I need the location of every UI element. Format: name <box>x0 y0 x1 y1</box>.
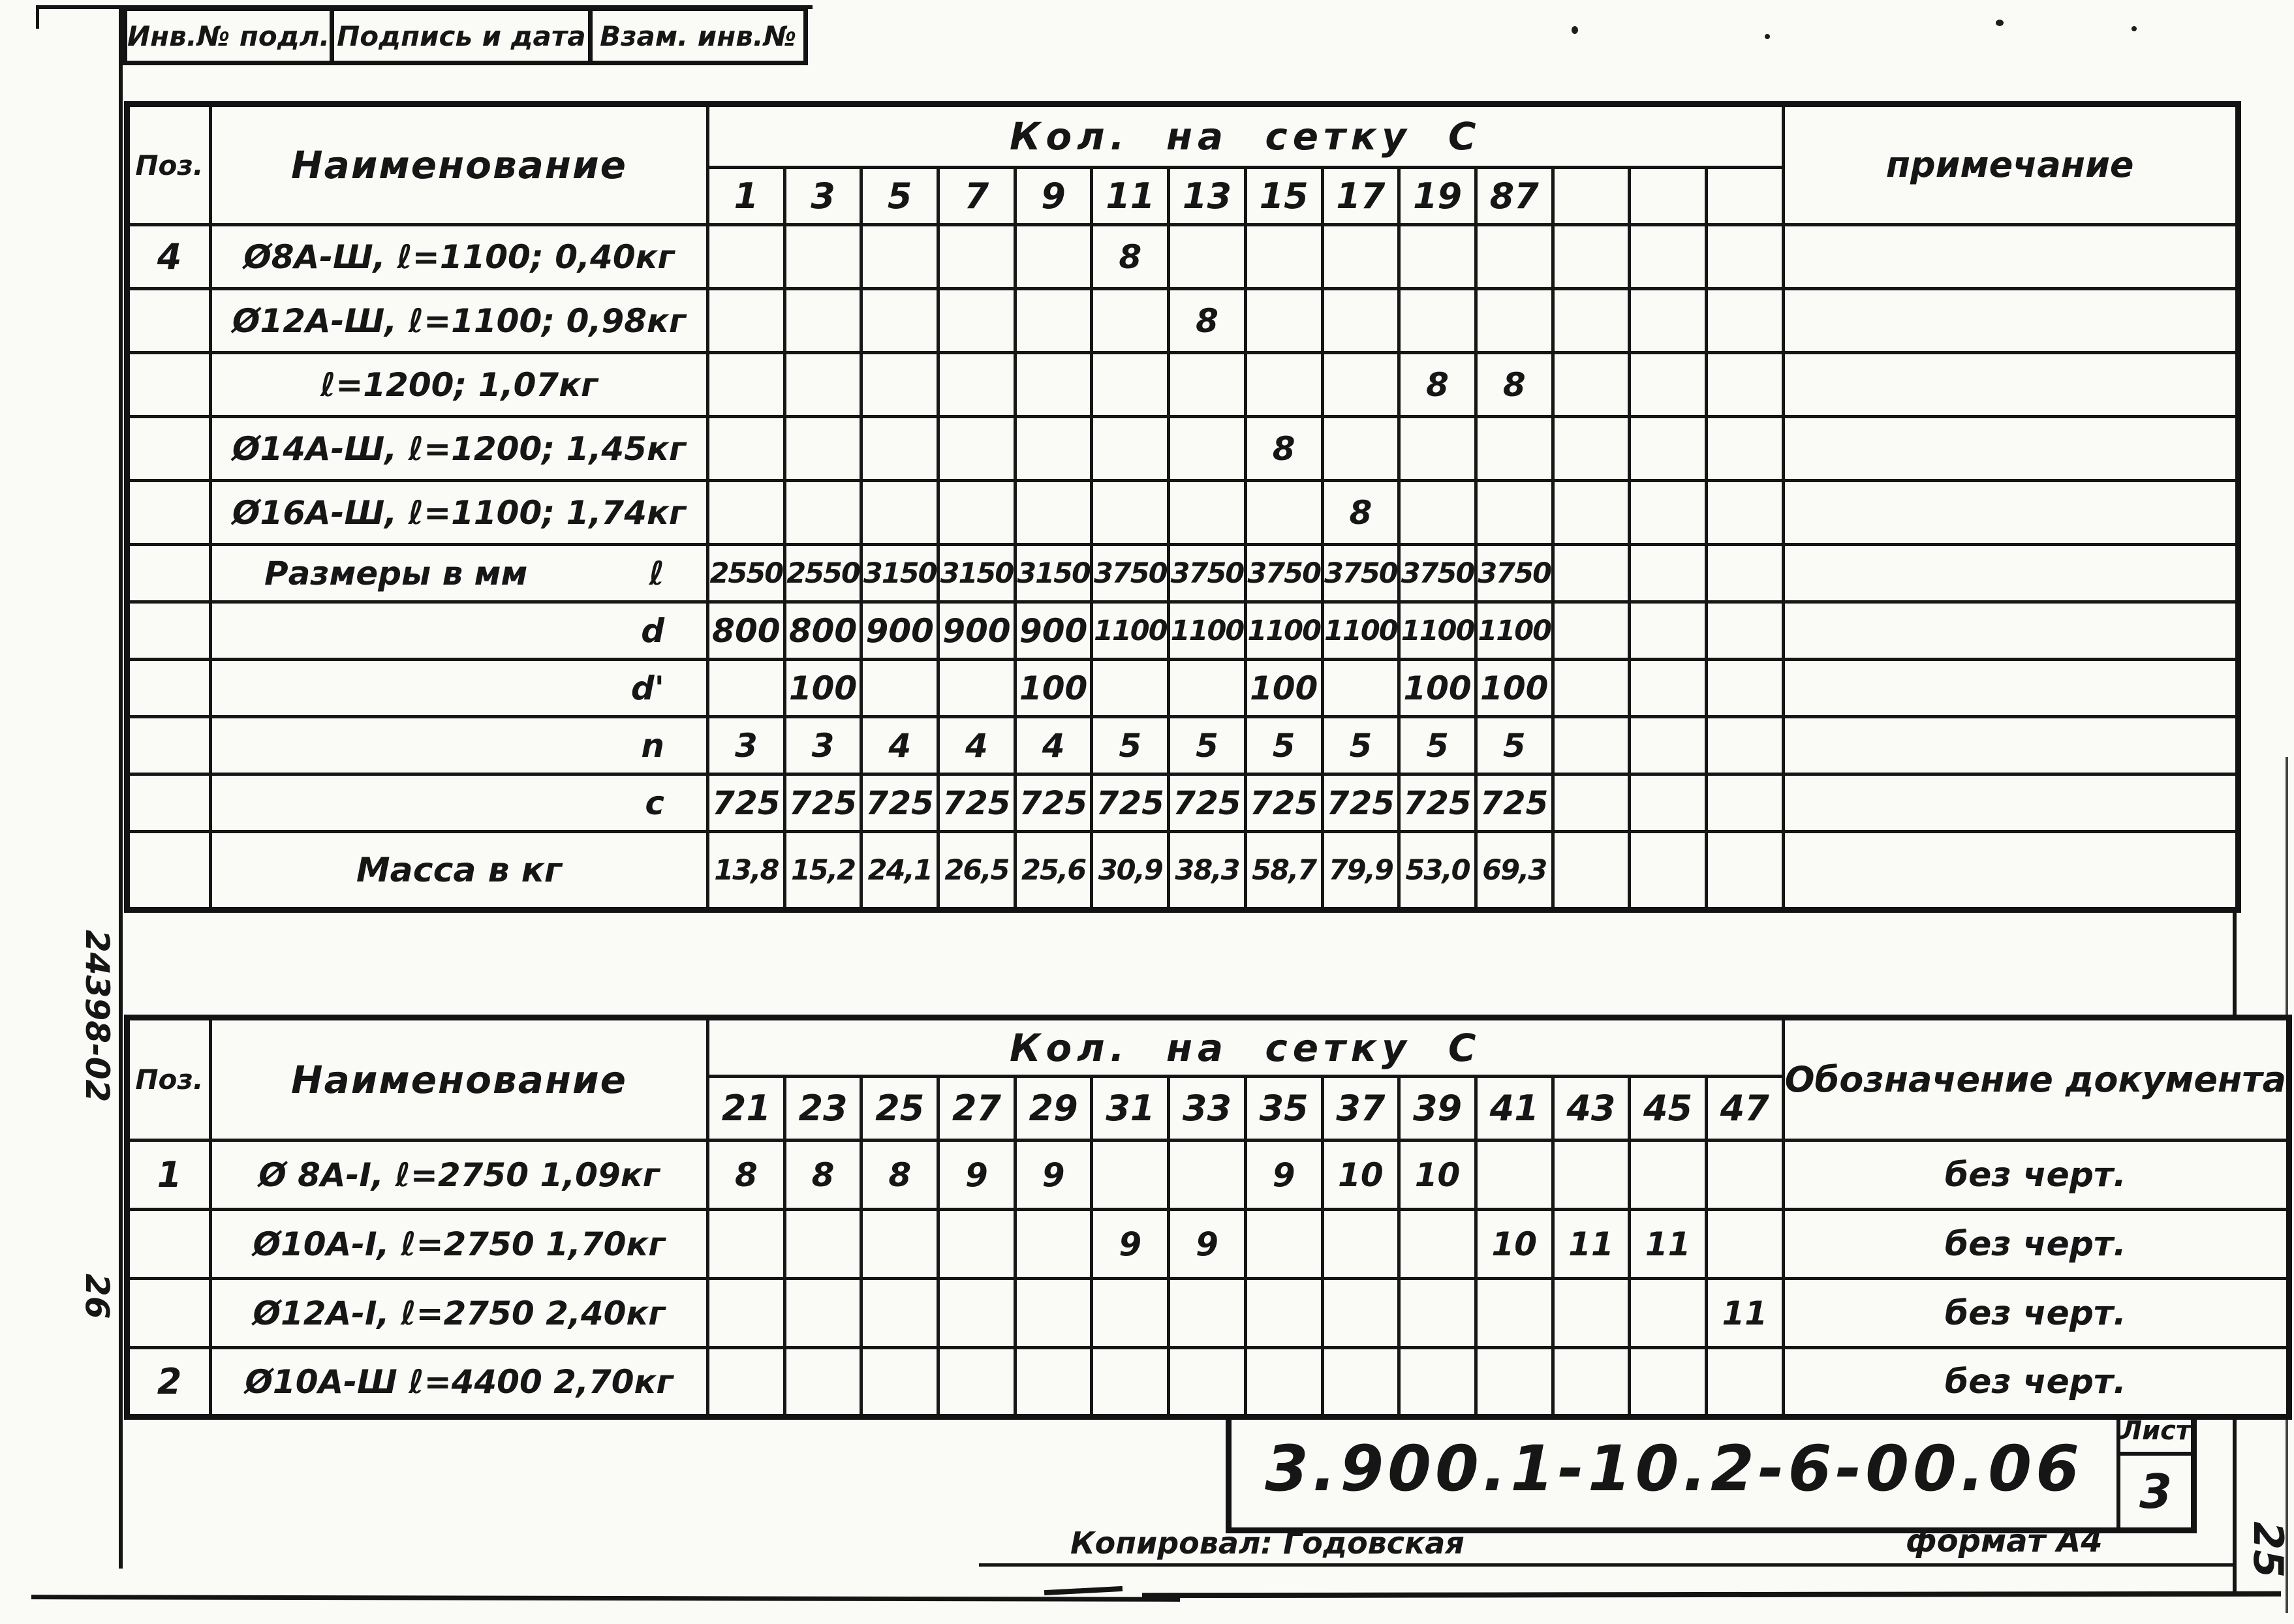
qty-cell <box>1399 1348 1476 1417</box>
note-cell <box>1783 353 2238 417</box>
qty-cell <box>1322 1279 1399 1348</box>
qty-group-header: Кол. на сетку С <box>708 104 1784 168</box>
copied-by-label: Копировал: Годовская <box>1070 1525 1465 1561</box>
qty-cell: 38,3 <box>1169 832 1246 910</box>
qty-cell <box>1553 225 1630 289</box>
qty-cell: 900 <box>938 602 1015 660</box>
qty-cell: 100 <box>1476 660 1553 717</box>
qty-cell <box>1476 481 1553 545</box>
name-cell: Ø10А-I, ℓ=2750 1,70кг <box>211 1210 708 1279</box>
qty-cell: 725 <box>1322 774 1399 832</box>
qty-cell <box>708 1348 785 1417</box>
pos-cell <box>127 417 211 481</box>
qty-cell: 1100 <box>1322 602 1399 660</box>
qty-cell <box>1553 289 1630 353</box>
grid-column-header: 13 <box>1169 168 1246 225</box>
frame-bottom-line <box>979 1563 2235 1567</box>
qty-cell <box>1169 417 1246 481</box>
qty-cell: 725 <box>938 774 1015 832</box>
qty-cell <box>1630 717 1707 774</box>
qty-cell <box>1169 1279 1246 1348</box>
dim-symbol: d' <box>631 669 664 707</box>
qty-cell <box>1553 481 1630 545</box>
qty-cell <box>938 353 1015 417</box>
qty-cell <box>708 225 785 289</box>
scan-speck <box>2131 26 2137 31</box>
name-cell: Размеры в ммℓ <box>211 545 708 602</box>
qty-cell: 26,5 <box>938 832 1015 910</box>
grid-column-header <box>1706 168 1783 225</box>
grid-column-header: 3 <box>784 168 861 225</box>
qty-cell: 53,0 <box>1399 832 1476 910</box>
qty-cell: 24,1 <box>861 832 938 910</box>
qty-cell <box>861 225 938 289</box>
qty-cell <box>1706 417 1783 481</box>
stamp-cell-vzam-inv: Взам. инв.№ <box>593 11 803 61</box>
qty-cell <box>1399 1279 1476 1348</box>
table-row: 1Ø 8А-I, ℓ=2750 1,09кг8889991010без черт… <box>127 1141 2289 1210</box>
qty-cell: 15,2 <box>784 832 861 910</box>
qty-cell <box>1706 1348 1783 1417</box>
qty-cell: 100 <box>784 660 861 717</box>
qty-cell <box>1553 602 1630 660</box>
note-cell <box>1783 602 2238 660</box>
qty-cell <box>861 1279 938 1348</box>
qty-cell <box>1015 1279 1092 1348</box>
pos-cell <box>127 289 211 353</box>
table-row: Ø16А-Ш, ℓ=1100; 1,74кг8 <box>127 481 2239 545</box>
qty-cell: 69,3 <box>1476 832 1553 910</box>
grid-column-header: 5 <box>861 168 938 225</box>
qty-cell: 10 <box>1476 1210 1553 1279</box>
qty-cell <box>861 417 938 481</box>
qty-cell: 8 <box>1169 289 1246 353</box>
qty-cell: 725 <box>1399 774 1476 832</box>
qty-cell <box>1322 660 1399 717</box>
qty-cell: 11 <box>1706 1279 1783 1348</box>
qty-cell <box>1092 289 1169 353</box>
qty-cell: 5 <box>1092 717 1169 774</box>
qty-cell: 1100 <box>1476 602 1553 660</box>
grid-column-header <box>1553 168 1630 225</box>
table-row: ℓ=1200; 1,07кг88 <box>127 353 2239 417</box>
qty-cell <box>1630 481 1707 545</box>
qty-cell <box>1322 1210 1399 1279</box>
qty-cell <box>938 1348 1015 1417</box>
qty-cell: 5 <box>1169 717 1246 774</box>
qty-cell: 3750 <box>1399 545 1476 602</box>
qty-cell <box>784 1210 861 1279</box>
qty-cell: 3 <box>784 717 861 774</box>
qty-cell: 5 <box>1476 717 1553 774</box>
qty-cell <box>861 481 938 545</box>
grid-column-header: 87 <box>1476 168 1553 225</box>
qty-cell <box>784 289 861 353</box>
qty-cell <box>1553 717 1630 774</box>
name-cell: d <box>211 602 708 660</box>
grid-column-header <box>1630 168 1707 225</box>
qty-cell <box>1092 1279 1169 1348</box>
qty-cell <box>1015 1348 1092 1417</box>
qty-cell <box>784 417 861 481</box>
table-row: 4Ø8А-Ш, ℓ=1100; 0,40кг8 <box>127 225 2239 289</box>
qty-cell <box>1322 353 1399 417</box>
qty-cell: 3750 <box>1245 545 1322 602</box>
qty-cell: 4 <box>861 717 938 774</box>
grid-column-header: 47 <box>1706 1077 1783 1141</box>
grid-column-header: 37 <box>1322 1077 1399 1141</box>
qty-cell: 725 <box>1015 774 1092 832</box>
grid-column-header: 23 <box>784 1077 861 1141</box>
dim-symbol: n <box>641 727 664 765</box>
name-cell: Ø8А-Ш, ℓ=1100; 0,40кг <box>211 225 708 289</box>
qty-cell <box>1630 225 1707 289</box>
qty-cell <box>1015 1210 1092 1279</box>
qty-cell <box>784 481 861 545</box>
scanned-drawing-sheet: Инв.№ подл. Подпись и дата Взам. инв.№ 3… <box>0 0 2294 1624</box>
name-cell: Ø10А-Ш ℓ=4400 2,70кг <box>211 1348 708 1417</box>
grid-column-header: 11 <box>1092 168 1169 225</box>
qty-cell <box>861 353 938 417</box>
qty-cell: 58,7 <box>1245 832 1322 910</box>
qty-cell: 4 <box>1015 717 1092 774</box>
qty-cell <box>784 225 861 289</box>
qty-cell <box>1706 1210 1783 1279</box>
qty-cell <box>1322 289 1399 353</box>
qty-cell <box>1553 1141 1630 1210</box>
grid-column-header: 7 <box>938 168 1015 225</box>
note-cell: без черт. <box>1783 1210 2289 1279</box>
qty-cell: 725 <box>861 774 938 832</box>
qty-cell <box>1092 417 1169 481</box>
dim-symbol: d <box>641 612 664 650</box>
format-label: формат А4 <box>1906 1523 2103 1559</box>
qty-cell <box>1169 660 1246 717</box>
qty-cell: 25,6 <box>1015 832 1092 910</box>
qty-cell <box>861 289 938 353</box>
qty-cell <box>1630 545 1707 602</box>
qty-cell <box>708 353 785 417</box>
qty-cell <box>1169 353 1246 417</box>
qty-cell: 8 <box>784 1141 861 1210</box>
qty-cell <box>708 660 785 717</box>
qty-cell <box>1553 660 1630 717</box>
name-column-header: Наименование <box>211 1018 708 1141</box>
qty-cell: 30,9 <box>1092 832 1169 910</box>
qty-cell <box>1245 353 1322 417</box>
qty-cell <box>1092 481 1169 545</box>
qty-cell: 9 <box>1169 1210 1246 1279</box>
qty-cell <box>1015 353 1092 417</box>
qty-cell <box>1245 1279 1322 1348</box>
pos-cell <box>127 832 211 910</box>
table-row: d800800900900900110011001100110011001100 <box>127 602 2239 660</box>
note-cell: без черт. <box>1783 1279 2289 1348</box>
frame-corner-tick <box>36 5 39 29</box>
qty-cell <box>1630 660 1707 717</box>
qty-cell <box>1015 481 1092 545</box>
qty-cell <box>1245 1348 1322 1417</box>
qty-cell: 5 <box>1245 717 1322 774</box>
note-cell <box>1783 481 2238 545</box>
note-cell: без черт. <box>1783 1141 2289 1210</box>
pos-cell <box>127 602 211 660</box>
qty-cell <box>1476 289 1553 353</box>
table-row: Масса в кг13,815,224,126,525,630,938,358… <box>127 832 2239 910</box>
qty-cell: 1100 <box>1092 602 1169 660</box>
name-cell: Масса в кг <box>211 832 708 910</box>
document-number: 3.900.1-10.2-6-00.06 <box>1232 1410 2120 1527</box>
grid-column-header: 19 <box>1399 168 1476 225</box>
grid-column-header: 29 <box>1015 1077 1092 1141</box>
qty-cell: 725 <box>1169 774 1246 832</box>
qty-cell <box>1015 289 1092 353</box>
qty-cell <box>784 353 861 417</box>
stamp-cell-podpis-data: Подпись и дата <box>334 11 593 61</box>
table-row: c725725725725725725725725725725725 <box>127 774 2239 832</box>
qty-cell <box>1092 1141 1169 1210</box>
qty-cell <box>1706 545 1783 602</box>
grid-column-header: 25 <box>861 1077 938 1141</box>
qty-cell <box>1476 1279 1553 1348</box>
note-column-header: примечание <box>1783 104 2238 225</box>
qty-cell <box>938 1279 1015 1348</box>
qty-cell: 3750 <box>1476 545 1553 602</box>
qty-cell <box>1706 481 1783 545</box>
name-cell: n <box>211 717 708 774</box>
qty-cell <box>1630 774 1707 832</box>
qty-cell <box>1630 1279 1707 1348</box>
qty-cell: 1100 <box>1399 602 1476 660</box>
dim-symbol: c <box>645 784 664 822</box>
qty-cell: 8 <box>1399 353 1476 417</box>
table-row: Ø12А-I, ℓ=2750 2,40кг11без черт. <box>127 1279 2289 1348</box>
qty-group-header: Кол. на сетку С <box>708 1018 1784 1077</box>
pos-cell: 4 <box>127 225 211 289</box>
qty-cell <box>1553 832 1630 910</box>
qty-cell <box>1706 832 1783 910</box>
qty-cell <box>1245 289 1322 353</box>
qty-cell <box>1706 353 1783 417</box>
qty-cell <box>938 481 1015 545</box>
table-row: Ø10А-I, ℓ=2750 1,70кг99101111без черт. <box>127 1210 2289 1279</box>
qty-cell: 3750 <box>1092 545 1169 602</box>
qty-cell: 9 <box>1092 1210 1169 1279</box>
pos-cell <box>127 717 211 774</box>
qty-cell <box>861 1210 938 1279</box>
qty-cell: 11 <box>1630 1210 1707 1279</box>
table-row: Размеры в ммℓ255025503150315031503750375… <box>127 545 2239 602</box>
qty-cell <box>1245 481 1322 545</box>
qty-cell <box>1553 545 1630 602</box>
qty-cell <box>1399 1210 1476 1279</box>
note-cell <box>1783 832 2238 910</box>
name-cell: c <box>211 774 708 832</box>
pos-column-header: Поз. <box>127 1018 211 1141</box>
qty-cell <box>708 481 785 545</box>
pos-cell <box>127 1210 211 1279</box>
pos-cell <box>127 660 211 717</box>
qty-cell: 10 <box>1399 1141 1476 1210</box>
frame-top-line <box>36 5 813 9</box>
qty-cell <box>861 1348 938 1417</box>
qty-cell: 3 <box>708 717 785 774</box>
note-column-header: Обозначение документа <box>1783 1018 2289 1141</box>
qty-cell: 800 <box>708 602 785 660</box>
qty-cell <box>1322 225 1399 289</box>
name-column-header: Наименование <box>211 104 708 225</box>
pos-cell <box>127 481 211 545</box>
table-row: Ø14А-Ш, ℓ=1200; 1,45кг8 <box>127 417 2239 481</box>
table-row: n33444555555 <box>127 717 2239 774</box>
qty-cell: 79,9 <box>1322 832 1399 910</box>
qty-cell <box>1399 225 1476 289</box>
qty-cell: 8 <box>1092 225 1169 289</box>
qty-cell <box>1553 1348 1630 1417</box>
grid-column-header: 27 <box>938 1077 1015 1141</box>
qty-cell: 100 <box>1245 660 1322 717</box>
qty-cell: 2550 <box>784 545 861 602</box>
qty-cell: 800 <box>784 602 861 660</box>
qty-cell <box>1706 774 1783 832</box>
qty-cell: 3750 <box>1322 545 1399 602</box>
qty-cell <box>1630 1348 1707 1417</box>
qty-cell <box>1322 1348 1399 1417</box>
qty-cell: 2550 <box>708 545 785 602</box>
grid-column-header: 21 <box>708 1077 785 1141</box>
spec-table-upper: Поз.НаименованиеКол. на сетку Спримечани… <box>124 101 2241 913</box>
scan-speck <box>1996 20 2004 26</box>
qty-cell: 1100 <box>1169 602 1246 660</box>
qty-cell <box>1553 1279 1630 1348</box>
qty-cell: 9 <box>1245 1141 1322 1210</box>
qty-cell <box>1476 417 1553 481</box>
qty-cell: 11 <box>1553 1210 1630 1279</box>
qty-cell: 13,8 <box>708 832 785 910</box>
qty-cell: 1100 <box>1245 602 1322 660</box>
qty-cell: 3150 <box>861 545 938 602</box>
grid-column-header: 41 <box>1476 1077 1553 1141</box>
qty-cell: 725 <box>1092 774 1169 832</box>
qty-cell <box>1245 225 1322 289</box>
qty-cell <box>1706 1141 1783 1210</box>
name-cell: d' <box>211 660 708 717</box>
pos-cell <box>127 353 211 417</box>
qty-cell: 725 <box>708 774 785 832</box>
qty-cell <box>1245 1210 1322 1279</box>
qty-cell: 4 <box>938 717 1015 774</box>
qty-cell <box>708 1279 785 1348</box>
stamp-strip: Инв.№ подл. Подпись и дата Взам. инв.№ <box>123 7 808 65</box>
qty-cell <box>1706 289 1783 353</box>
qty-cell <box>1015 225 1092 289</box>
note-cell: без черт. <box>1783 1348 2289 1417</box>
note-cell <box>1783 717 2238 774</box>
qty-cell <box>938 417 1015 481</box>
qty-cell: 9 <box>1015 1141 1092 1210</box>
qty-cell <box>1630 353 1707 417</box>
note-cell <box>1783 289 2238 353</box>
qty-cell <box>1553 774 1630 832</box>
grid-column-header: 35 <box>1245 1077 1322 1141</box>
qty-cell: 10 <box>1322 1141 1399 1210</box>
sheet-number: 3 <box>2120 1456 2191 1527</box>
qty-cell <box>708 289 785 353</box>
margin-inventory-code: 24398-02 <box>78 930 116 1102</box>
scan-bottom-edge-right <box>1142 1591 2281 1598</box>
qty-cell <box>1476 225 1553 289</box>
name-cell: ℓ=1200; 1,07кг <box>211 353 708 417</box>
name-cell: Ø 8А-I, ℓ=2750 1,09кг <box>211 1141 708 1210</box>
grid-column-header: 33 <box>1169 1077 1246 1141</box>
qty-cell: 8 <box>861 1141 938 1210</box>
qty-cell <box>708 417 785 481</box>
qty-cell <box>1015 417 1092 481</box>
qty-cell <box>1476 1141 1553 1210</box>
qty-cell: 8 <box>1245 417 1322 481</box>
pos-cell: 1 <box>127 1141 211 1210</box>
qty-cell <box>1706 225 1783 289</box>
table-row: Ø12А-Ш, ℓ=1100; 0,98кг8 <box>127 289 2239 353</box>
qty-cell <box>1169 1141 1246 1210</box>
qty-cell <box>1476 1348 1553 1417</box>
qty-cell: 725 <box>1245 774 1322 832</box>
qty-cell <box>784 1348 861 1417</box>
qty-cell: 3150 <box>938 545 1015 602</box>
qty-cell: 8 <box>1476 353 1553 417</box>
scan-speck <box>1765 34 1770 39</box>
qty-cell: 5 <box>1322 717 1399 774</box>
scan-bottom-edge-left <box>31 1595 1180 1602</box>
qty-cell: 3150 <box>1015 545 1092 602</box>
qty-cell <box>1169 481 1246 545</box>
name-cell: Ø12А-I, ℓ=2750 2,40кг <box>211 1279 708 1348</box>
grid-column-header: 39 <box>1399 1077 1476 1141</box>
title-block: 3.900.1-10.2-6-00.06 Лист 3 <box>1226 1404 2197 1533</box>
qty-cell <box>1553 353 1630 417</box>
stamp-cell-inv-podl: Инв.№ подл. <box>127 11 334 61</box>
dim-label: Размеры в мм <box>264 555 527 592</box>
qty-cell <box>1630 417 1707 481</box>
note-cell <box>1783 774 2238 832</box>
name-cell: Ø16А-Ш, ℓ=1100; 1,74кг <box>211 481 708 545</box>
note-cell <box>1783 545 2238 602</box>
qty-cell <box>1169 225 1246 289</box>
scan-bottom-edge-bump <box>1044 1586 1123 1595</box>
qty-cell <box>938 289 1015 353</box>
qty-cell <box>1706 717 1783 774</box>
frame-left-line <box>119 5 123 1569</box>
qty-cell: 900 <box>1015 602 1092 660</box>
qty-cell <box>938 1210 1015 1279</box>
qty-cell <box>1092 1348 1169 1417</box>
grid-column-header: 9 <box>1015 168 1092 225</box>
qty-cell <box>1399 481 1476 545</box>
scan-speck <box>1572 26 1578 34</box>
dim-symbol: ℓ <box>649 555 664 592</box>
qty-cell <box>938 660 1015 717</box>
pos-cell <box>127 1279 211 1348</box>
qty-cell <box>1169 1348 1246 1417</box>
note-cell <box>1783 417 2238 481</box>
note-cell <box>1783 225 2238 289</box>
qty-cell <box>861 660 938 717</box>
qty-cell <box>1553 417 1630 481</box>
qty-cell <box>1092 353 1169 417</box>
qty-cell: 900 <box>861 602 938 660</box>
qty-cell: 9 <box>938 1141 1015 1210</box>
qty-cell <box>1630 832 1707 910</box>
